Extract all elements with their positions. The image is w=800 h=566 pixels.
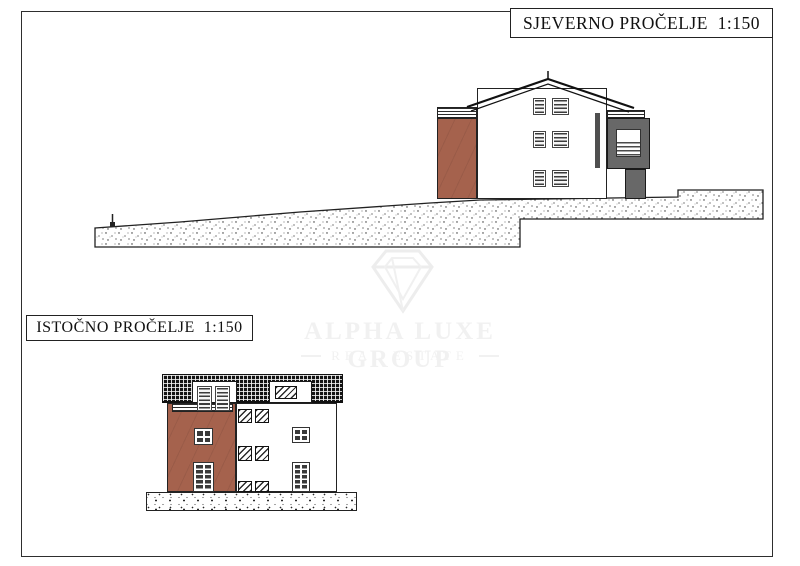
- stair-tower-top-band: [607, 110, 645, 118]
- louver-window: [533, 170, 546, 187]
- east-plinth: [146, 492, 357, 511]
- watermark-diamond-icon: [0, 0, 800, 566]
- stair-tower-opening: [616, 129, 641, 157]
- cross-window: [292, 427, 310, 443]
- north-wall-edge-shadow: [595, 113, 600, 168]
- north-brick-column: [437, 118, 477, 199]
- sheet-border: [21, 11, 773, 557]
- hatch-window: [255, 446, 269, 461]
- watermark-dash-right: [479, 355, 499, 357]
- louver-window: [552, 131, 569, 148]
- watermark-tagline-row: REAL ESTATE: [250, 348, 550, 364]
- east-elevation-title-box: ISTOČNO PROČELJE 1:150: [26, 315, 253, 341]
- grid-window: [292, 462, 310, 492]
- terrain-ground: [95, 190, 763, 247]
- roof-overlay: [0, 0, 800, 566]
- north-brick-top-band: [437, 107, 477, 118]
- grid-window: [193, 462, 214, 492]
- hatch-window: [275, 386, 297, 399]
- watermark-dash-left: [301, 355, 321, 357]
- stair-tower-leg: [625, 169, 646, 199]
- north-elevation-title: SJEVERNO PROČELJE 1:150: [523, 13, 760, 34]
- louver-window: [197, 386, 212, 411]
- hatch-window: [238, 409, 252, 423]
- louver-window: [552, 170, 569, 187]
- louver-window: [552, 98, 569, 115]
- cross-window: [194, 428, 213, 445]
- watermark-brand: ALPHA LUXE GROUP: [250, 318, 550, 374]
- north-elevation-title-box: SJEVERNO PROČELJE 1:150: [510, 8, 773, 38]
- east-roof-band: [162, 374, 343, 403]
- hatch-window: [255, 481, 269, 492]
- watermark-tagline: REAL ESTATE: [331, 348, 469, 364]
- louver-window: [533, 98, 546, 115]
- terrain-layer: [0, 0, 800, 566]
- drawing-sheet: ALPHA LUXE GROUP REAL ESTATE: [0, 0, 800, 566]
- hatch-window: [238, 446, 252, 461]
- louver-window: [533, 131, 546, 148]
- survey-post: [110, 214, 115, 227]
- hatch-window: [255, 409, 269, 423]
- louver-window: [215, 386, 230, 411]
- hatch-window: [238, 481, 252, 492]
- tower-railing: [617, 142, 640, 156]
- east-elevation-title: ISTOČNO PROČELJE 1:150: [36, 319, 242, 337]
